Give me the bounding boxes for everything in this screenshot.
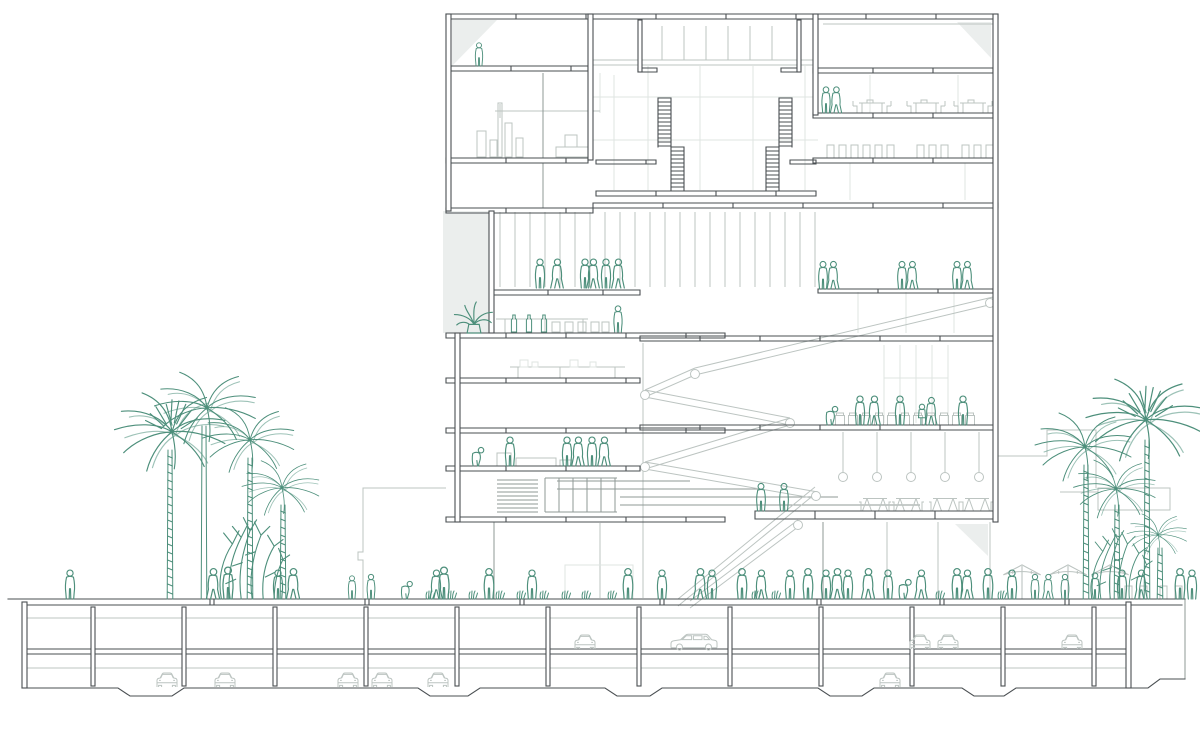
parking-garage <box>91 607 1096 687</box>
building-section-drawing <box>0 0 1200 751</box>
ramp-zigzag <box>641 297 995 608</box>
shadow-fills <box>443 20 991 556</box>
vegetation-and-people <box>65 43 1200 599</box>
interior-furniture <box>27 24 1185 679</box>
architectural-drawing-canvas <box>0 0 1200 751</box>
